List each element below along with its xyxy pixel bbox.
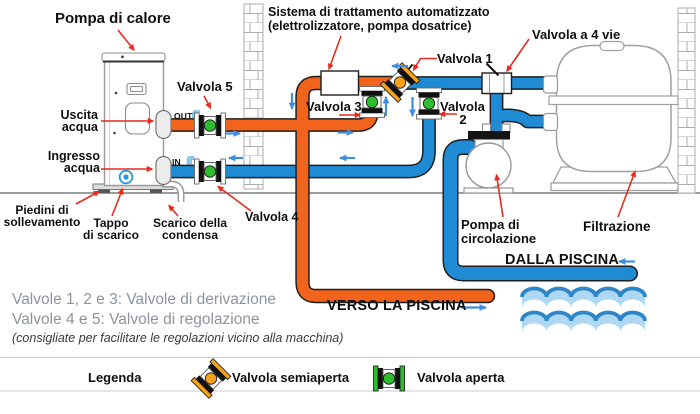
pump-base [464,188,513,193]
note-valves-derivation: Valvole 1, 2 e 3: Valvole di derivazione [12,291,276,308]
pointer-arrow [118,30,134,50]
pointer-arrow [414,59,438,71]
water-inlet-label: Ingresso acqua [30,150,100,175]
filter-band [549,96,678,105]
circulation-pump-label: Pompa di circolazione [461,218,536,245]
four-way-valve-box [482,73,512,94]
pool-heat-pump-diagram: Pompa di calore Sistema di trattamento a… [0,0,700,414]
treatment-system-label-line1: Sistema di trattamento automatizzato [268,6,490,18]
heat-pump-lid [102,53,165,62]
pump-body [466,143,511,188]
pointer-arrow [204,96,211,108]
treatment-system-label-line2: (elettrolizzatore, pompa dosatrice) [268,20,472,32]
circulation-pump [464,124,513,193]
from-pool-label: DALLA PISCINA [505,253,619,268]
valve-2-open-icon [417,88,442,119]
valve-4-open-icon [195,159,226,184]
valve-1-label: Valvola 1 [437,52,493,66]
out-port-label: OUT [174,112,193,121]
legend-valve-open-icon [374,366,405,391]
filter-top-cap [600,42,624,51]
diagram-canvas [0,0,700,414]
to-pool-label: VERSO LA PISCINA [327,299,467,314]
drain-plug-label: Tappo di scarico [80,217,142,242]
filter-tank [544,42,679,191]
front-panel [126,103,150,134]
valve-2-number: 2 [440,113,486,127]
inlet-port [156,157,171,185]
valve-5-label: Valvola 5 [177,80,233,94]
filter-body [557,46,672,172]
heat-pump-label: Pompa di calore [55,11,171,26]
treatment-system-box [321,71,359,95]
water-outlet-label: Uscita acqua [30,109,98,134]
pool-waves-icon [522,289,645,333]
legend-semiopen-label: Valvola semiaperta [232,371,349,385]
valve-5-open-icon [195,113,226,138]
valve-4-label: Valvola 4 [245,211,299,223]
legend-title: Legenda [88,371,141,385]
pump-flange [468,131,510,140]
filter-lower-port [544,114,558,131]
condensate-drain-label: Scarico della condensa [146,217,234,242]
valve-3-label: Valvola 3 [306,100,362,114]
in-port-label: IN [172,158,181,167]
outlet-port [156,111,171,139]
filter-upper-port [544,76,558,93]
pointer-arrow [218,187,251,212]
pointer-arrow [329,36,341,69]
lifting-foot-right [150,190,162,194]
pointer-arrow [169,206,178,217]
legend-valve-semiopen-icon [191,359,231,399]
pointer-arrow [507,39,529,71]
note-valves-regulation: Valvole 4 e 5: Valvole di regolazione [12,311,260,328]
note-advice: (consigliate per facilitare le regolazio… [12,331,343,345]
brick-wall-right [678,8,695,193]
lifting-feet-label: Piedini di sollevamento [0,204,86,229]
legend-open-label: Valvola aperta [417,371,504,385]
four-way-valve-label: Valvola a 4 vie [532,28,620,42]
lifting-foot-left [98,190,110,194]
filtration-label: Filtrazione [583,220,651,234]
valve-3-open-icon [360,87,385,118]
brick-wall-left [244,4,263,189]
faucet-icon [187,157,194,165]
